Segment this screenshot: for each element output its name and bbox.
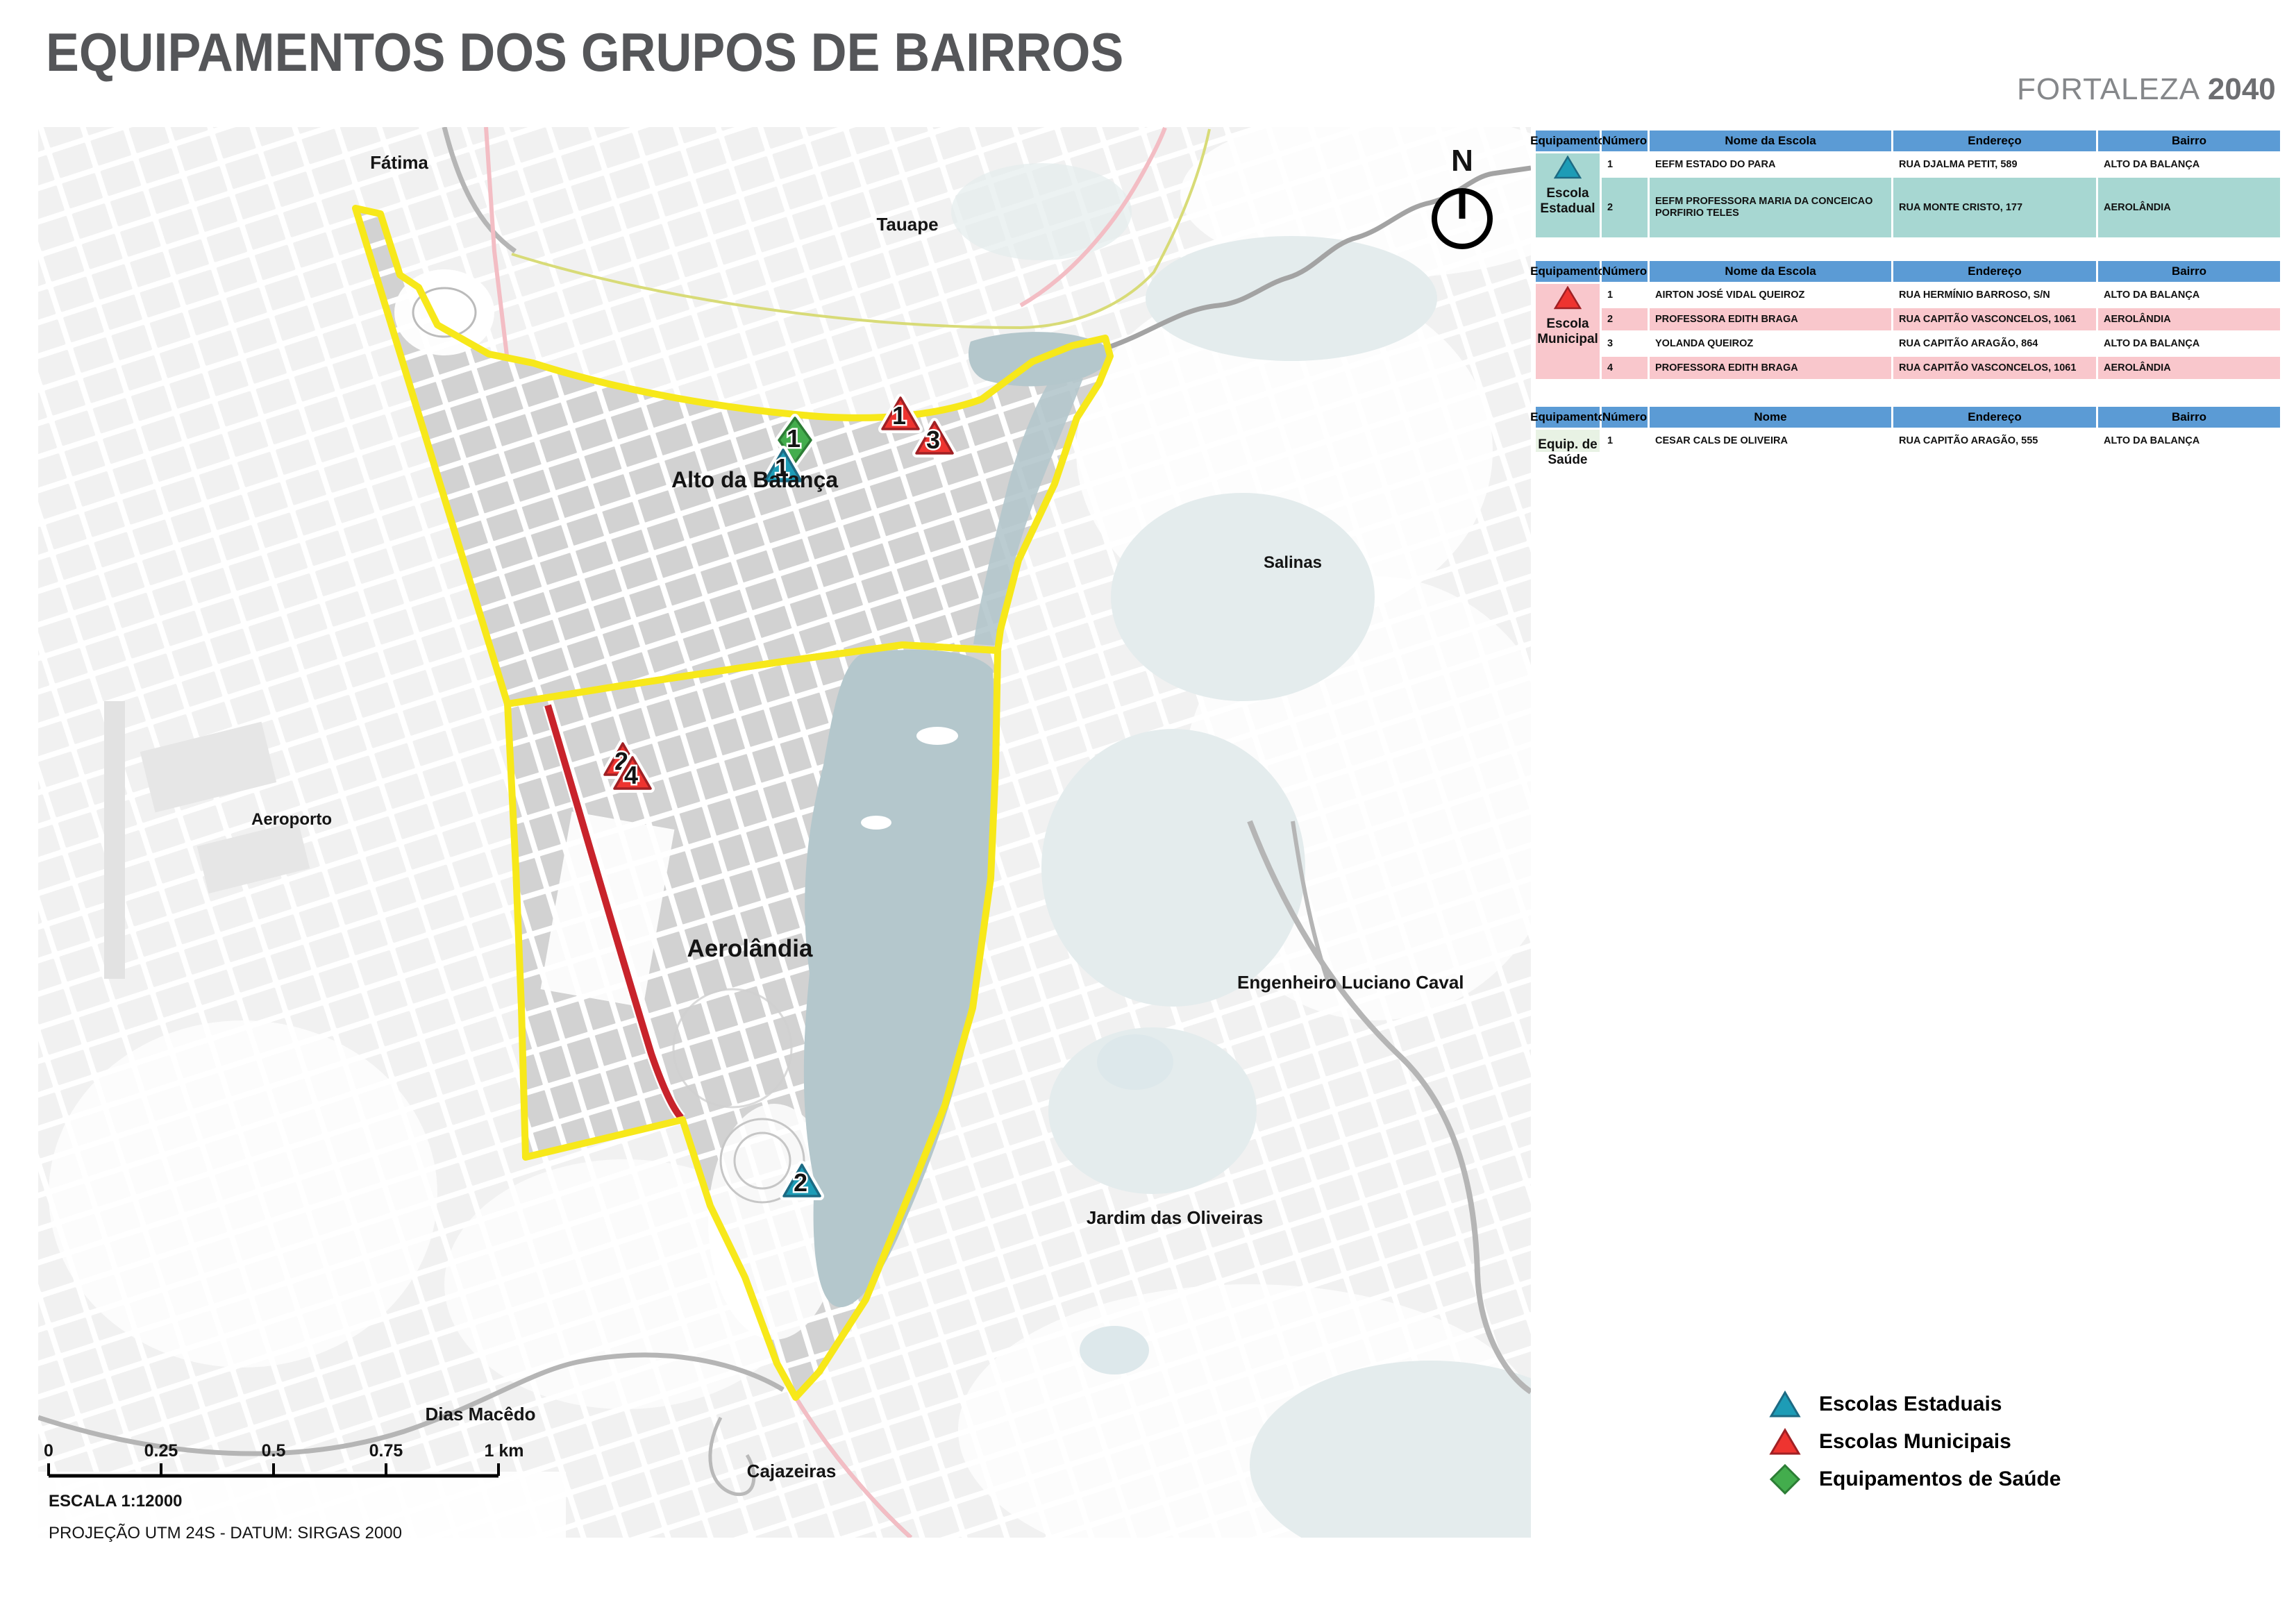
marker-number: 3: [926, 426, 940, 454]
table-cell: AIRTON JOSÉ VIDAL QUEIROZ: [1650, 284, 1891, 306]
table-cell: RUA HERMÍNIO BARROSO, S/N: [1893, 284, 2096, 306]
table-cell: EEFM PROFESSORA MARIA DA CONCEICAO PORFI…: [1650, 178, 1891, 237]
legend-label: Escolas Municipais: [1819, 1430, 2011, 1454]
north-label: N: [1451, 144, 1473, 178]
column-header: Endereço: [1893, 407, 2096, 428]
column-header: Bairro: [2098, 407, 2280, 428]
map-place-label: Engenheiro Luciano Caval: [1237, 972, 1464, 993]
table-cell: ALTO DA BALANÇA: [2098, 333, 2280, 355]
marker-number: 1: [787, 424, 801, 453]
legend-item-saude: Equipamentos de Saúde: [1769, 1461, 2061, 1498]
map-place-label: Dias Macêdo: [426, 1404, 536, 1424]
map-place-label: Jardim das Oliveiras: [1087, 1207, 1263, 1228]
table-cell: PROFESSORA EDITH BRAGA: [1650, 357, 1891, 379]
table-cell: RUA CAPITÃO ARAGÃO, 555: [1893, 430, 2096, 452]
legend-label: Equipamentos de Saúde: [1819, 1468, 2061, 1491]
table-cell: 2: [1602, 178, 1648, 237]
map-legend: Escolas Estaduais Escolas Municipais Equ…: [1769, 1386, 2061, 1498]
column-header: Bairro: [2098, 261, 2280, 282]
projection-text: PROJEÇÃO UTM 24S - DATUM: SIRGAS 2000: [49, 1524, 402, 1542]
column-header: Bairro: [2098, 131, 2280, 151]
table-cell: RUA DJALMA PETIT, 589: [1893, 153, 2096, 176]
scale-tick-label: 0: [44, 1441, 53, 1461]
table-cell: ALTO DA BALANÇA: [2098, 153, 2280, 176]
table-escola-estadual: Equipamento Número Nome da Escola Endere…: [1536, 131, 2272, 237]
table-cell: RUA CAPITÃO ARAGÃO, 864: [1893, 333, 2096, 355]
scale-tick-label: 0.5: [262, 1441, 286, 1461]
column-header: Nome: [1650, 407, 1891, 428]
column-header: Número: [1602, 131, 1648, 151]
table-cell: 2: [1602, 308, 1648, 330]
map-place-label: Fátima: [370, 152, 428, 173]
group-label: Escola Municipal: [1536, 317, 1600, 347]
legend-item-estaduais: Escolas Estaduais: [1769, 1386, 2061, 1423]
column-header: Equipamento: [1536, 261, 1600, 282]
marker-number: 2: [794, 1168, 807, 1197]
column-header: Número: [1602, 261, 1648, 282]
map-place-label: Cajazeiras: [747, 1461, 837, 1481]
column-header: Nome da Escola: [1650, 261, 1891, 282]
table-cell: RUA CAPITÃO VASCONCELOS, 1061: [1893, 308, 2096, 330]
table-cell: YOLANDA QUEIROZ: [1650, 333, 1891, 355]
column-header: Equipamento: [1536, 407, 1600, 428]
map-place-label: Aerolândia: [687, 935, 813, 962]
table-cell: 3: [1602, 333, 1648, 355]
map-layers: 1311242 FátimaTauapeSalinasAeroportoEnge…: [38, 111, 1611, 1576]
red-triangle-icon: [1769, 1428, 1801, 1456]
table-cell: ALTO DA BALANÇA: [2098, 430, 2280, 452]
column-header: Equipamento: [1536, 131, 1600, 151]
table-equip-saude: Equipamento Número Nome Endereço Bairro …: [1536, 407, 2272, 452]
scale-tick-label: 1 km: [485, 1441, 524, 1461]
column-header: Número: [1602, 407, 1648, 428]
scale-text: ESCALA 1:12000: [49, 1492, 183, 1511]
group-label: Escola Estadual: [1536, 186, 1600, 217]
group-label: Equip. de Saúde: [1536, 437, 1600, 468]
map-place-label: Aeroporto: [251, 810, 332, 829]
table-cell: CESAR CALS DE OLIVEIRA: [1650, 430, 1891, 452]
map-place-label: Alto da Balança: [671, 467, 838, 492]
red-triangle-icon: [1554, 286, 1582, 310]
table-cell: 1: [1602, 284, 1648, 306]
column-header: Endereço: [1893, 261, 2096, 282]
teal-triangle-icon: [1554, 155, 1582, 179]
scale-tick-label: 0.25: [144, 1441, 178, 1461]
table-cell: RUA CAPITÃO VASCONCELOS, 1061: [1893, 357, 2096, 379]
table-cell: AEROLÂNDIA: [2098, 357, 2280, 379]
marker-number: 4: [624, 761, 638, 789]
table-cell: 4: [1602, 357, 1648, 379]
table-cell: 1: [1602, 430, 1648, 452]
group-cell-saude: Equip. de Saúde: [1536, 430, 1600, 452]
map-place-label: Tauape: [876, 214, 938, 235]
legend-label: Escolas Estaduais: [1819, 1393, 2002, 1416]
green-diamond-icon: [1769, 1463, 1801, 1495]
table-cell: 1: [1602, 153, 1648, 176]
table-cell: RUA MONTE CRISTO, 177: [1893, 178, 2096, 237]
table-cell: AEROLÂNDIA: [2098, 308, 2280, 330]
scale-tick-label: 0.75: [369, 1441, 403, 1461]
table-cell: AEROLÂNDIA: [2098, 178, 2280, 237]
column-header: Nome da Escola: [1650, 131, 1891, 151]
map-place-label: Salinas: [1264, 553, 1322, 572]
marker-number: 1: [892, 401, 906, 430]
equipment-tables: Equipamento Número Nome da Escola Endere…: [1536, 131, 2272, 452]
teal-triangle-icon: [1769, 1390, 1801, 1418]
legend-item-municipais: Escolas Municipais: [1769, 1423, 2061, 1461]
group-cell-municipal: Escola Municipal: [1536, 284, 1600, 379]
table-cell: ALTO DA BALANÇA: [2098, 284, 2280, 306]
table-cell: EEFM ESTADO DO PARA: [1650, 153, 1891, 176]
group-cell-estadual: Escola Estadual: [1536, 153, 1600, 237]
table-escola-municipal: Equipamento Número Nome da Escola Endere…: [1536, 261, 2272, 379]
table-cell: PROFESSORA EDITH BRAGA: [1650, 308, 1891, 330]
column-header: Endereço: [1893, 131, 2096, 151]
